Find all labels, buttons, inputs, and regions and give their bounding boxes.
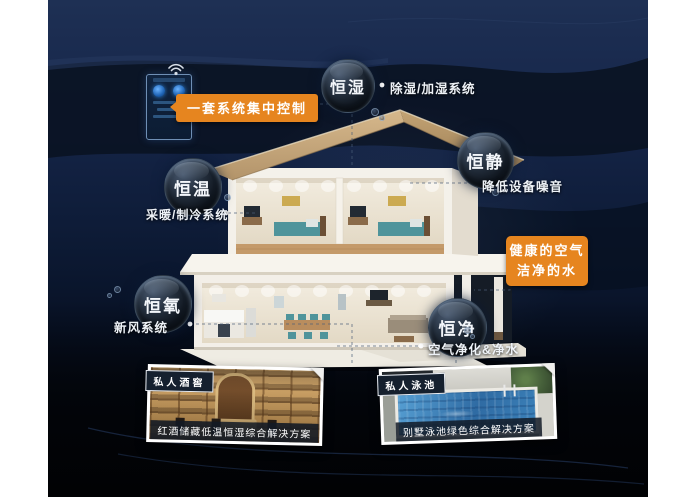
note-heating-cooling-system: 采暖/制冷系统 (146, 206, 228, 223)
water-glint (439, 410, 475, 419)
note-dehumidify-humidify-system: 除湿/加湿系统 (390, 78, 475, 97)
decor-bubble (107, 293, 112, 298)
corner-fold-icon (542, 363, 555, 376)
photo-card-pool: 私人泳池 别墅泳池绿色综合解决方案 (379, 363, 558, 445)
wifi-icon (167, 62, 185, 76)
photo-badge: 私人酒窖 (145, 370, 213, 393)
note-noise-reduction: 降低设备噪音 (482, 176, 563, 195)
pool-ladder-icon (503, 384, 515, 396)
note-fresh-air-system: 新风系统 (114, 317, 168, 336)
decor-bubble (464, 327, 471, 334)
note-air-water-purification: 空气净化&净水 (428, 339, 519, 358)
decor-bubble (379, 115, 385, 121)
decor-bubble (224, 194, 231, 201)
callout-line1: 健康的空气 (508, 241, 586, 261)
decor-bubble (114, 286, 121, 293)
bubble-constant-humidity: 恒湿 (321, 59, 375, 113)
phone-titlebar (153, 78, 185, 82)
photo-caption: 红酒储藏低温恒湿综合解决方案 (150, 420, 318, 443)
decor-bubble (371, 108, 379, 116)
corner-fold-icon (311, 368, 324, 381)
callout-line2: 洁净的水 (508, 261, 586, 281)
healthy-air-water-callout: 健康的空气 洁净的水 (506, 236, 588, 286)
poster-page: 一套系统集中控制 健康的空气 洁净的水 恒湿 恒静 恒温 恒氧 恒净 除湿/加湿… (0, 0, 700, 497)
photo-card-wine-cellar: 私人酒窖 红酒储藏低温恒湿综合解决方案 (146, 364, 324, 446)
central-control-callout: 一套系统集中控制 (176, 94, 318, 122)
dial-icon (153, 85, 165, 97)
photo-badge: 私人泳池 (377, 373, 446, 396)
photo-caption: 别墅泳池绿色综合解决方案 (396, 417, 543, 441)
